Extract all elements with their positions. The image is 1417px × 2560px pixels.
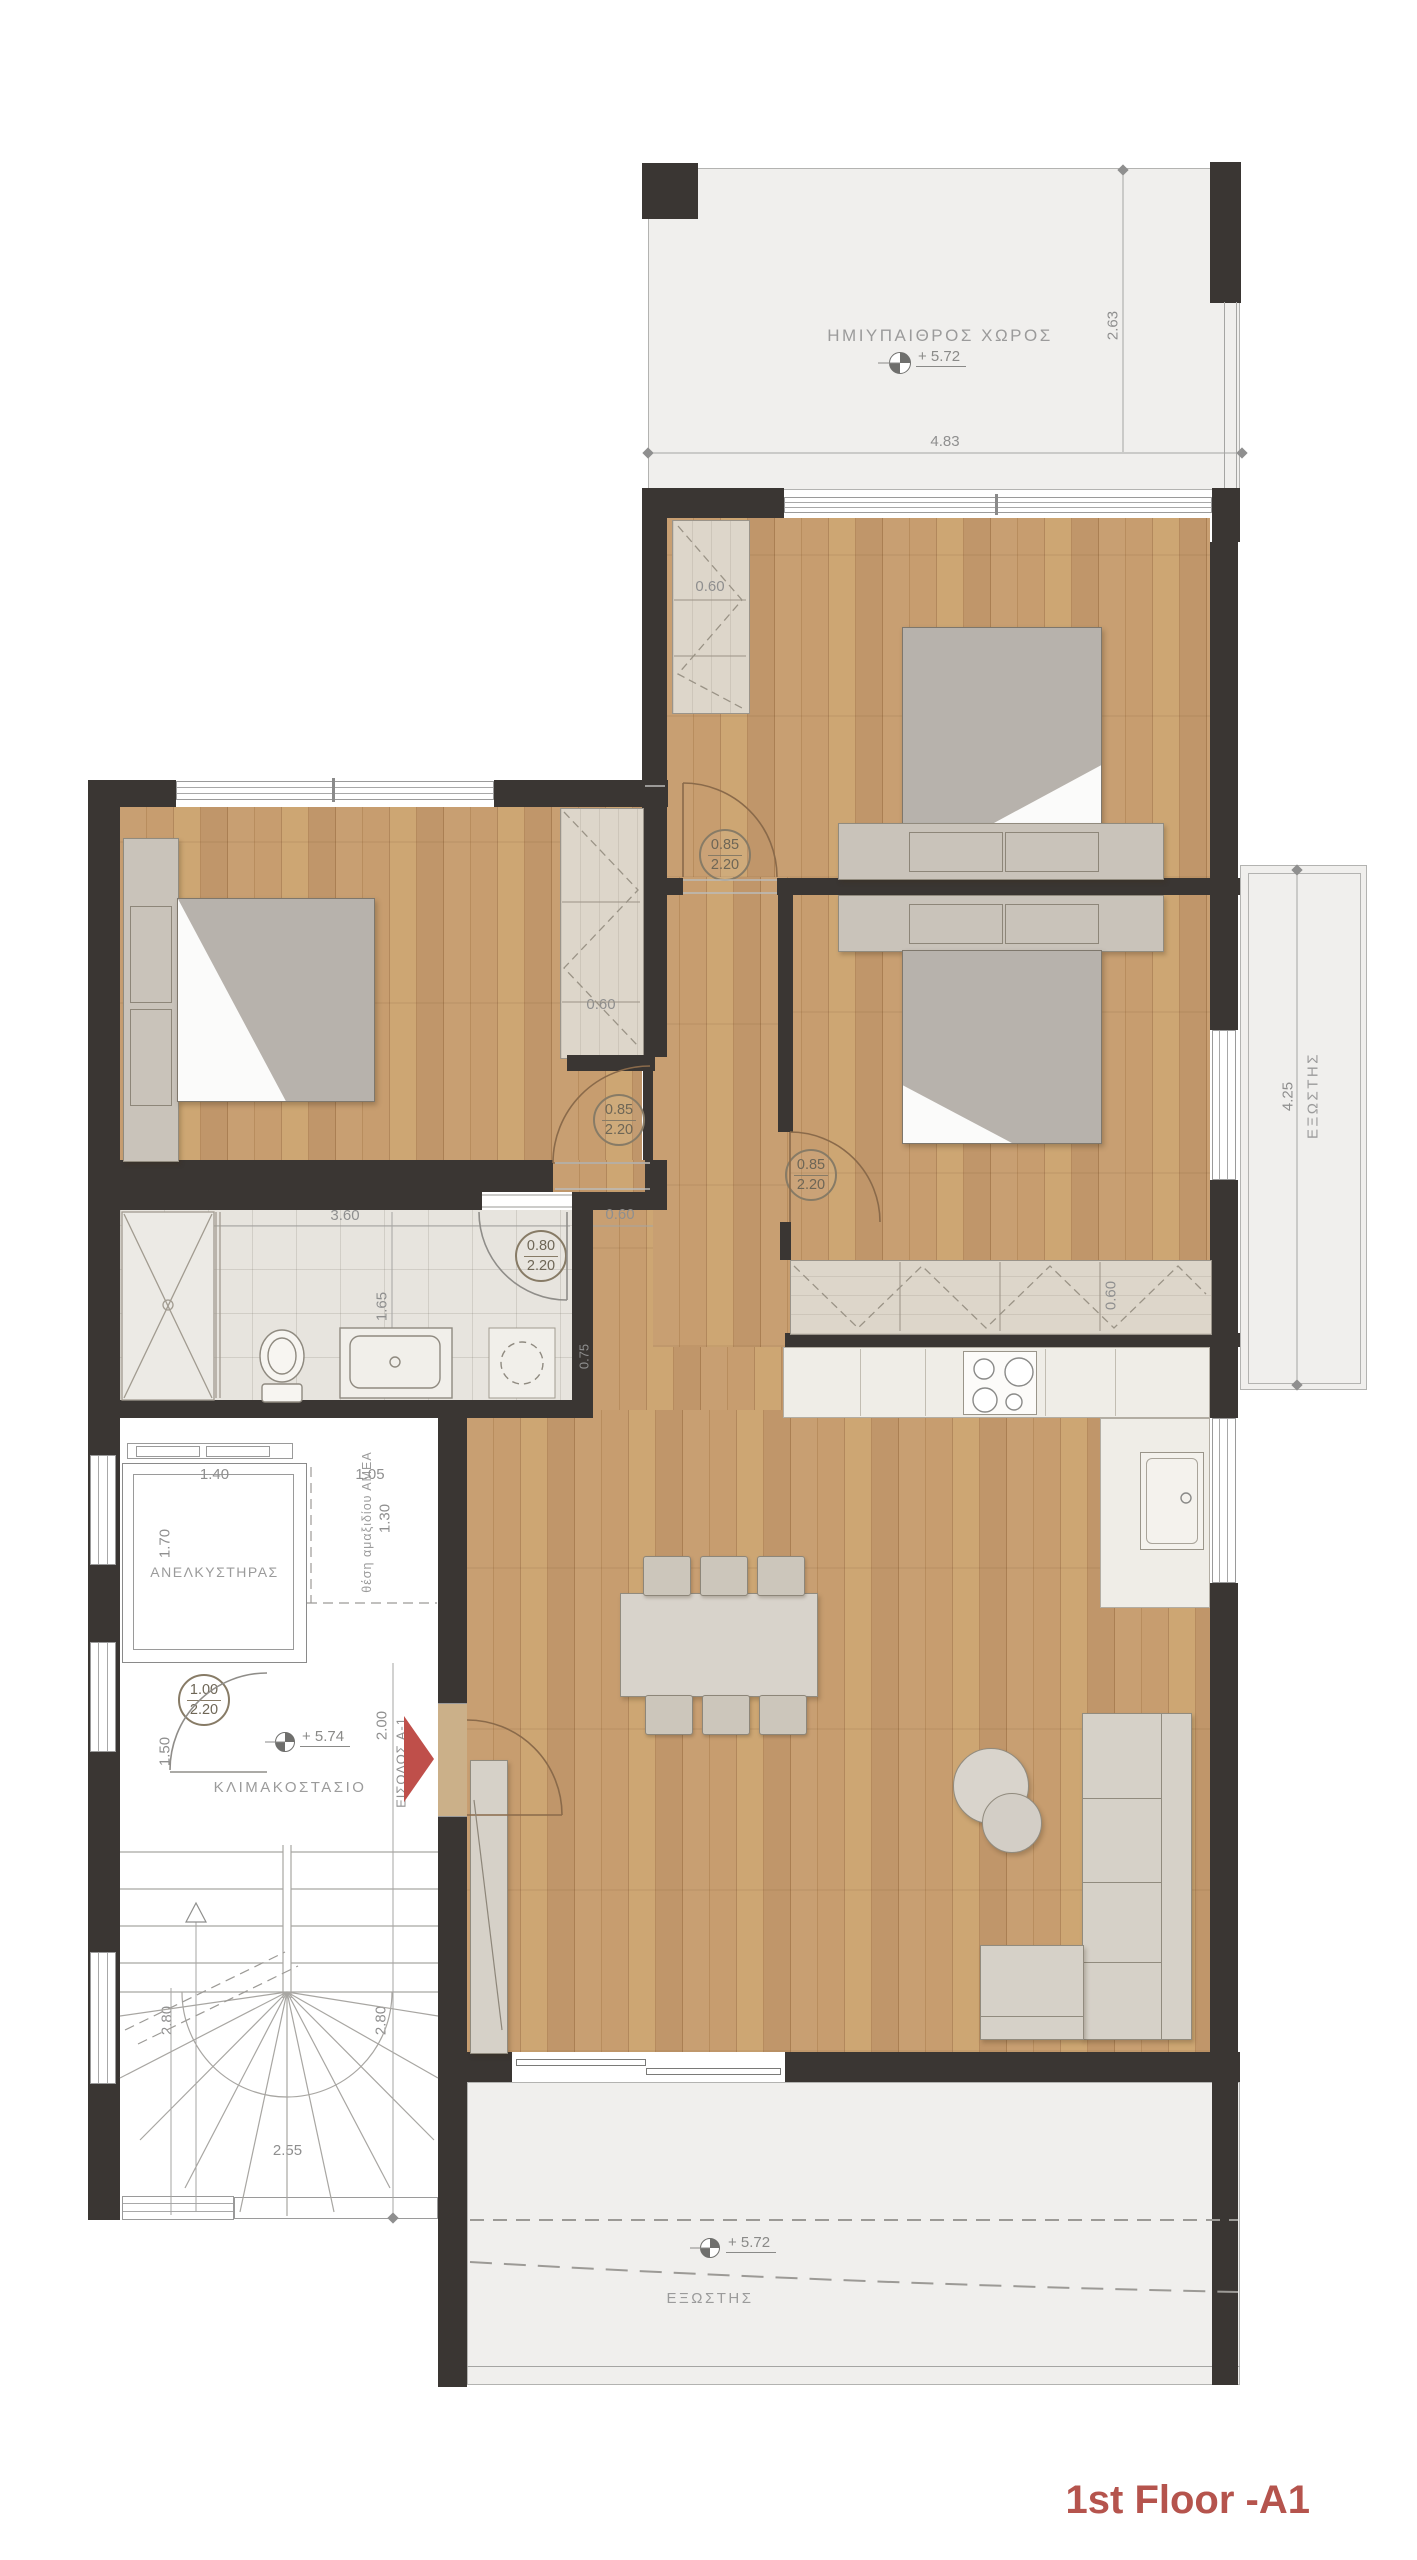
semi-outdoor-label: ΗΜΙΥΠΑΙΘΡΟΣ ΧΩΡΟΣ <box>790 326 1090 346</box>
wall <box>642 488 784 518</box>
stairwell-label: ΚΛΙΜΑΚΟΣΤΑΣΙΟ <box>205 1779 375 1796</box>
window-stair-bottom <box>122 2196 234 2220</box>
dim-balcony-right: 4.25 <box>1280 1075 1297 1119</box>
wall <box>667 878 683 895</box>
wall <box>778 878 793 1132</box>
wall <box>1210 1180 1238 1418</box>
wall <box>88 1192 482 1210</box>
level-marker-icon <box>889 352 911 374</box>
dim-bath-width: 3.60 <box>310 1207 380 1224</box>
wall <box>567 1055 655 1071</box>
wall <box>438 1817 467 2387</box>
door-width: 1.00 <box>187 1681 221 1700</box>
dining-chair <box>759 1695 807 1735</box>
wall <box>1212 2082 1238 2385</box>
counter-division <box>860 1349 861 1416</box>
dining-table <box>620 1593 818 1697</box>
dim-hall-wall: 0.60 <box>590 1206 650 1223</box>
dim-entry-depth: 2.00 <box>374 1704 391 1748</box>
dim-wheelchair-width: 1.05 <box>305 1466 435 1483</box>
nightstand <box>1005 904 1099 944</box>
level-value: + 5.74 <box>300 1728 350 1747</box>
bed-bedroom-left <box>177 898 375 1102</box>
closet-bedroom1 <box>672 520 750 714</box>
wall <box>494 780 668 807</box>
door-tag-bathroom: 0.80 2.20 <box>515 1230 567 1282</box>
dim-wardrobe-bedroom2: 0.60 <box>1103 1274 1120 1318</box>
cabinet-door <box>136 1446 200 1457</box>
balcony-bottom-floor <box>467 2082 1240 2385</box>
cabinet-door <box>206 1446 270 1457</box>
counter-division <box>1115 1349 1116 1416</box>
level-value: + 5.72 <box>916 348 966 367</box>
blanket-fold <box>178 899 286 1101</box>
wall <box>644 877 667 1057</box>
entrance-door-sill <box>438 1703 467 1817</box>
headboard-bedroom1 <box>838 823 1164 880</box>
door-height: 2.20 <box>190 1701 218 1719</box>
hall-floor <box>653 877 790 1347</box>
sofa-seam <box>1083 1798 1161 1799</box>
nightstand <box>909 904 1003 944</box>
blanket-fold <box>992 765 1101 824</box>
sofa-horizontal <box>980 1945 1084 2040</box>
nightstand <box>130 1009 172 1106</box>
counter-division <box>925 1349 926 1416</box>
balcony-bottom-label: ΕΞΩΣΤΗΣ <box>640 2290 780 2307</box>
nightstand <box>909 832 1003 872</box>
window-lobby-1 <box>90 1455 116 1565</box>
dim-semi-outdoor-depth: 2.63 <box>1105 304 1122 348</box>
sofa-seam <box>981 2016 1083 2017</box>
stair-break-line <box>125 1952 298 2044</box>
wall <box>88 1160 553 1192</box>
nightstand <box>130 906 172 1003</box>
pillar <box>642 163 698 219</box>
sofa-vertical <box>1082 1713 1192 2040</box>
wall <box>642 518 667 877</box>
kitchen-hall-floor <box>593 1347 790 1418</box>
sofa-seam <box>1083 1962 1161 1963</box>
window-stair <box>90 1952 116 2084</box>
door-tag-lobby: 1.00 2.20 <box>178 1674 230 1726</box>
balcony-edge-line <box>467 2366 1240 2367</box>
nightstand <box>1005 832 1099 872</box>
railing-line <box>1236 302 1237 490</box>
floor-plan-canvas: ΗΜΙΥΠΑΙΘΡΟΣ ΧΩΡΟΣ + 5.72 2.63 4.83 <box>0 0 1417 2560</box>
kitchen-appliance-door <box>1146 1458 1198 1544</box>
door-width: 0.85 <box>794 1156 828 1175</box>
pillar <box>88 780 176 807</box>
wall <box>785 2052 1240 2082</box>
door-tag-bedroom-left: 0.85 2.20 <box>593 1094 645 1146</box>
window-lobby-2 <box>90 1642 116 1752</box>
window-bedroom2 <box>1212 1030 1236 1180</box>
dim-closet-bedroom1: 0.60 <box>672 578 748 595</box>
dim-stair-left: 2.80 <box>159 1999 176 2043</box>
balcony-right-label: ΕΞΩΣΤΗΣ <box>1305 1041 1322 1151</box>
sofa-seam <box>1083 1882 1161 1883</box>
elevator-label: ΑΝΕΛΚΥΣΤΗΡΑΣ <box>122 1564 307 1580</box>
dim-stair-right: 2.80 <box>373 1999 390 2043</box>
window-bedroom-left <box>176 781 494 800</box>
window-mullion <box>332 778 335 802</box>
sliding-door-panel <box>646 2068 781 2075</box>
level-marker-icon <box>700 2238 720 2258</box>
wall <box>1210 1583 1238 2082</box>
bathroom-floor <box>120 1210 572 1402</box>
bed-bedroom2 <box>902 950 1102 1144</box>
tv-cabinet <box>470 1760 508 2054</box>
sliding-door-panel <box>516 2059 646 2066</box>
dining-chair <box>757 1556 805 1596</box>
dim-wheelchair-depth: 1.30 <box>377 1497 394 1541</box>
dim-bath-depth: 1.65 <box>374 1285 391 1329</box>
dim-elevator-depth: 1.70 <box>157 1522 174 1566</box>
door-width: 0.85 <box>708 836 742 855</box>
pillar <box>1212 488 1240 542</box>
cabinet-lobby <box>127 1443 293 1459</box>
door-width: 0.85 <box>602 1101 636 1120</box>
railing-line <box>1224 302 1225 490</box>
headboard-bedroom-left <box>123 838 179 1162</box>
dim-stair-width: 2.55 <box>245 2142 330 2159</box>
entrance-arrow-icon <box>404 1716 434 1802</box>
door-height: 2.20 <box>605 1121 633 1139</box>
dining-chair <box>702 1695 750 1735</box>
window-mullion <box>995 494 998 515</box>
elevator-shaft <box>122 1463 307 1663</box>
door-height: 2.20 <box>527 1257 555 1275</box>
wall <box>1210 542 1238 1030</box>
coffee-table-small <box>982 1793 1042 1853</box>
drawing-title: 1st Floor -A1 <box>950 2478 1310 2523</box>
dining-chair <box>643 1556 691 1596</box>
dim-closet-bedroom-left: 0.60 <box>560 996 642 1013</box>
wall <box>1210 162 1241 303</box>
wall <box>785 1333 1240 1347</box>
sofa-backrest-line <box>1161 1714 1162 2039</box>
wardrobe-bedroom2 <box>790 1260 1212 1335</box>
dining-chair <box>645 1695 693 1735</box>
wall <box>458 2052 512 2082</box>
headboard-bedroom2 <box>838 895 1164 952</box>
dim-bath-wall: 0.75 <box>577 1335 592 1379</box>
level-value: + 5.72 <box>726 2234 776 2253</box>
stair-bottom-band <box>234 2197 438 2219</box>
bed-bedroom1 <box>902 627 1102 825</box>
door-gap <box>553 1160 650 1192</box>
door-width: 0.80 <box>524 1237 558 1256</box>
window-kitchen <box>1212 1418 1236 1583</box>
wall <box>780 1222 791 1260</box>
wall <box>438 1410 467 1703</box>
dim-lobby-width: 1.50 <box>157 1730 174 1774</box>
wall <box>88 1400 593 1418</box>
window-bedroom1 <box>784 497 1212 513</box>
stove <box>963 1351 1037 1415</box>
door-height: 2.20 <box>711 856 739 874</box>
dining-chair <box>700 1556 748 1596</box>
dim-semi-outdoor-width: 4.83 <box>915 433 975 450</box>
counter-division <box>1045 1349 1046 1416</box>
door-tag-bedroom2: 0.85 2.20 <box>785 1149 837 1201</box>
dim-elevator-width: 1.40 <box>122 1466 307 1483</box>
door-tag-bedroom1: 0.85 2.20 <box>699 829 751 881</box>
wall <box>777 878 1240 895</box>
closet-bedroom-left <box>560 808 644 1059</box>
level-marker-icon <box>275 1732 295 1752</box>
blanket-fold <box>903 1085 1012 1143</box>
door-height: 2.20 <box>797 1176 825 1194</box>
